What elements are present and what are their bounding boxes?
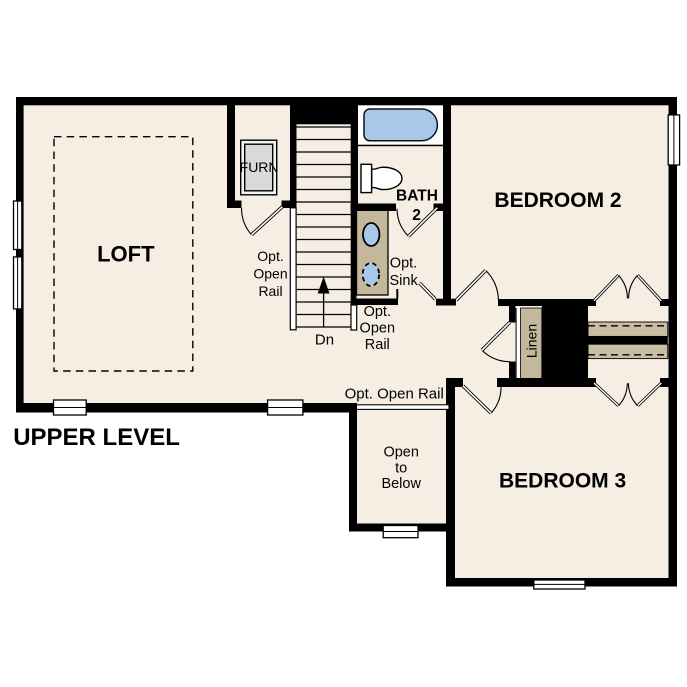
svg-text:Linen: Linen [524,324,540,358]
svg-text:LOFT: LOFT [97,242,155,267]
svg-text:Rail: Rail [365,337,390,353]
svg-text:2: 2 [412,207,421,224]
svg-text:Below: Below [381,476,421,492]
svg-text:Opt.: Opt. [364,304,391,320]
svg-text:to: to [395,460,407,476]
svg-text:Open: Open [383,445,418,461]
svg-text:BEDROOM 2: BEDROOM 2 [494,189,621,212]
svg-text:Open: Open [253,266,287,282]
svg-text:Rail: Rail [258,283,282,299]
svg-text:Dn: Dn [315,332,334,349]
svg-text:Opt. Open Rail: Opt. Open Rail [345,385,444,402]
svg-text:FURN: FURN [240,159,279,175]
svg-text:BEDROOM 3: BEDROOM 3 [499,469,626,492]
svg-text:Opt.: Opt. [390,256,417,272]
svg-text:Opt.: Opt. [257,248,283,264]
svg-text:UPPER LEVEL: UPPER LEVEL [13,424,180,451]
svg-text:BATH: BATH [396,187,438,204]
svg-text:Sink: Sink [389,273,418,289]
svg-text:Open: Open [360,321,395,337]
